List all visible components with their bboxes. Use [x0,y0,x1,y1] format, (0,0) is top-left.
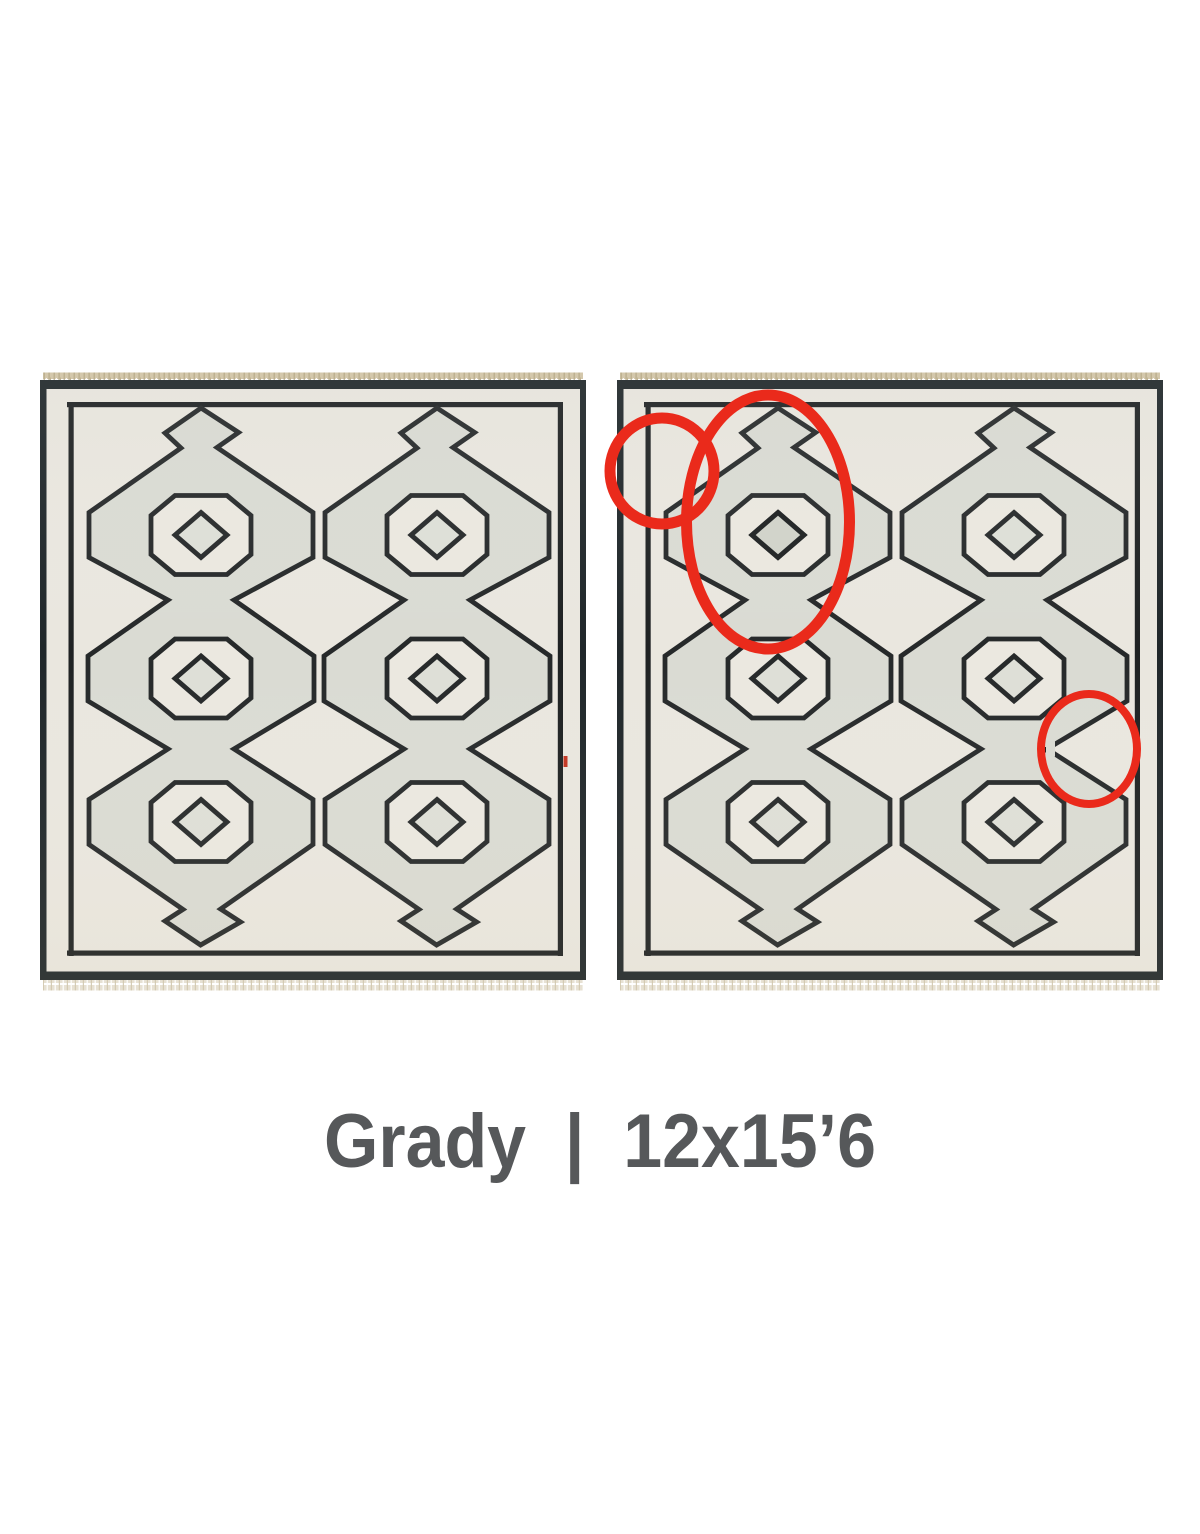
svg-text:Grady | 12x15’6: Grady | 12x15’6 [324,1099,876,1185]
